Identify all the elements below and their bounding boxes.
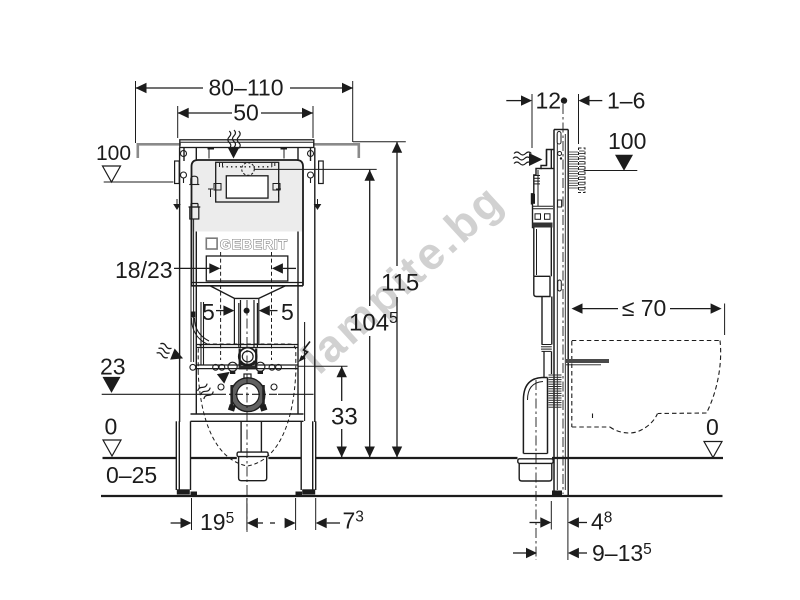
svg-text:1–6: 1–6 [607, 88, 645, 114]
svg-text:80–110: 80–110 [208, 75, 283, 101]
svg-text:50: 50 [233, 100, 259, 126]
svg-text:GEBERIT: GEBERIT [220, 236, 288, 252]
svg-text:115: 115 [381, 270, 419, 297]
svg-text:73: 73 [343, 508, 364, 534]
svg-text:48: 48 [591, 509, 612, 535]
svg-text:100: 100 [608, 128, 646, 154]
svg-text:195: 195 [200, 509, 234, 535]
svg-text:0–25: 0–25 [106, 462, 157, 488]
svg-text:9–135: 9–135 [592, 540, 652, 566]
svg-text:1045: 1045 [349, 310, 398, 337]
svg-text:12: 12 [536, 88, 562, 114]
svg-text:100: 100 [96, 142, 131, 165]
svg-text:≤ 70: ≤ 70 [622, 295, 667, 321]
svg-text:0: 0 [706, 414, 719, 440]
svg-text:0: 0 [105, 414, 118, 440]
svg-text:18/23: 18/23 [115, 257, 173, 283]
svg-text:33: 33 [331, 404, 358, 431]
svg-text:23: 23 [100, 354, 126, 380]
svg-text:5: 5 [202, 299, 215, 325]
svg-text:5: 5 [281, 299, 294, 325]
